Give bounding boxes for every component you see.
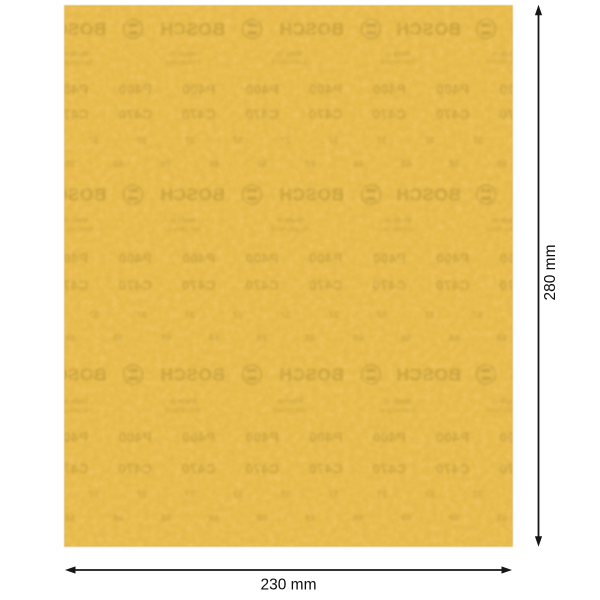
svg-text:230 mm: 230 mm [261,577,317,594]
svg-text:280 mm: 280 mm [542,245,559,301]
